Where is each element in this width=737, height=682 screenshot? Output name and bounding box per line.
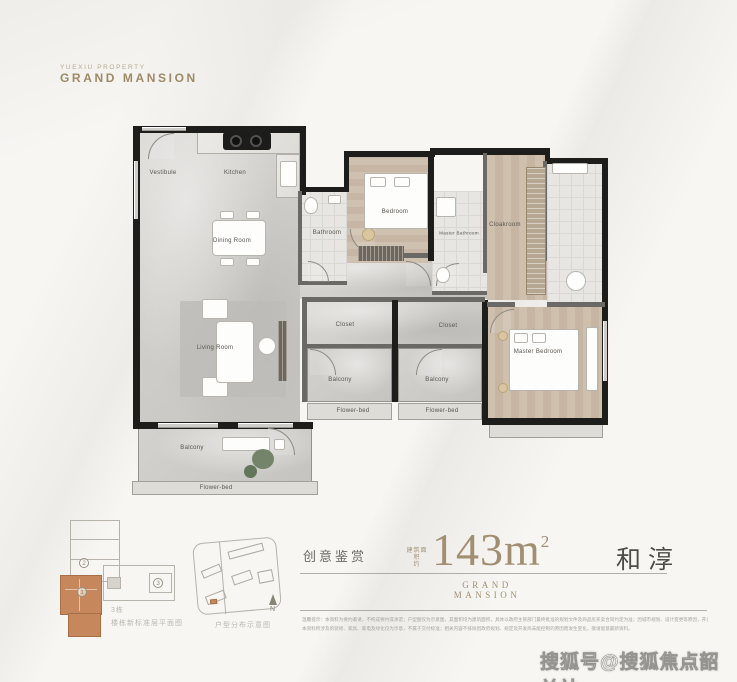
brand-logo: YUEXIU PROPERTY GRAND MANSION	[60, 64, 198, 85]
floorplan-poster: YUEXIU PROPERTY GRAND MANSION	[0, 0, 737, 682]
wall	[602, 158, 608, 425]
window-bench	[586, 327, 598, 391]
disclaimer-line-2: 本资料所涉及的装修、家具、家电及绿化仅为示意，不属于交付标准；相关内容不排除因政…	[302, 626, 708, 632]
plant-icon	[252, 449, 274, 469]
room-label-balcony-b: Balcony	[425, 377, 448, 383]
shower-icon	[436, 197, 456, 217]
room-label-cloakroom: Cloakroom	[489, 222, 521, 228]
wall	[432, 291, 487, 295]
siteplan-building	[227, 543, 264, 560]
pillow	[532, 333, 546, 343]
disclaimer-line-1: 温馨提示：本资料为要约邀请，不构成要约或承诺；户型图仅为示意图，其面积均为建筑面…	[302, 617, 708, 623]
divider-rule	[300, 573, 667, 574]
brand-tagline: YUEXIU PROPERTY	[60, 64, 198, 71]
wall	[300, 187, 347, 192]
pillow	[514, 333, 528, 343]
unit-3-badge: 3	[153, 578, 163, 588]
balcony-table	[274, 439, 285, 450]
label-flower-bed-a: Flower-bed	[336, 408, 369, 414]
siteplan-highlight-unit	[210, 599, 217, 605]
siteplan-divider	[219, 542, 226, 614]
wall	[300, 126, 306, 195]
room-label-balcony-a: Balcony	[328, 377, 351, 383]
sofa	[216, 321, 254, 383]
bathtub-icon	[566, 271, 586, 291]
brand-name: GRAND MANSION	[60, 71, 198, 85]
dining-chair	[246, 258, 260, 266]
wall	[487, 302, 515, 307]
plant-icon	[244, 465, 257, 478]
room-label-bedroom: Bedroom	[382, 209, 408, 215]
keyplan-highlight-unit	[68, 613, 101, 637]
product-name: 和淳	[616, 540, 680, 576]
area-prefix-top: 建筑面积	[404, 548, 430, 562]
siteplan-building	[231, 570, 253, 586]
armchair	[202, 299, 228, 319]
area-number: 143m	[432, 524, 541, 575]
window	[238, 423, 293, 428]
dining-chair	[220, 211, 234, 219]
dining-chair	[246, 211, 260, 219]
window	[142, 127, 186, 131]
keyplan-building-label: 3栋	[111, 605, 124, 615]
pillow	[370, 177, 386, 187]
wall	[302, 300, 307, 402]
room-label-main-balcony: Balcony	[180, 445, 203, 451]
room-label-kitchen: Kitchen	[224, 170, 246, 176]
wall	[344, 151, 349, 192]
hall-cabinet	[358, 246, 404, 261]
burner-icon	[230, 135, 242, 147]
room-label-vestibule: Vestibule	[149, 170, 176, 176]
basin-icon	[328, 195, 341, 204]
dining-chair	[220, 258, 234, 266]
site-plan: N 户型分布示意图	[193, 538, 293, 633]
keyplan-line	[70, 539, 120, 540]
bay-shelf	[552, 163, 588, 174]
nightstand	[498, 383, 508, 393]
master-bedroom-planter	[489, 424, 603, 438]
label-flower-bed-b: Flower-bed	[425, 408, 458, 414]
wall	[392, 300, 398, 402]
unit-2-badge: 2	[79, 558, 89, 568]
floor-plan: Vestibule Kitchen Dining Room Living Roo…	[118, 121, 610, 500]
room-label-dining: Dining Room	[213, 238, 251, 244]
wall	[483, 153, 487, 273]
wardrobe	[526, 167, 546, 295]
category-label: 创意鉴赏	[303, 546, 367, 565]
toilet-icon	[436, 267, 450, 283]
north-arrow-icon	[269, 594, 277, 605]
pillow	[394, 177, 410, 187]
keyplan-stair-core	[107, 577, 121, 589]
siteplan-building	[257, 569, 274, 584]
room-label-closet-b: Closet	[439, 323, 458, 329]
siteplan-building	[201, 564, 223, 579]
room-label-master-bathroom: Master Bathroom	[439, 231, 479, 236]
area-prefix-bottom: 约	[404, 562, 430, 569]
kitchen-sink	[280, 161, 297, 187]
window	[603, 321, 607, 381]
wall	[547, 302, 605, 307]
area-prefix: 建筑面积 约	[404, 548, 430, 569]
series-label: GRAND MANSION	[428, 580, 546, 600]
window	[134, 161, 138, 219]
wall	[430, 148, 549, 155]
toilet-icon	[304, 197, 318, 214]
area-value: 143m2	[432, 527, 550, 573]
area-superscript: 2	[541, 532, 551, 551]
tv-console	[278, 321, 287, 381]
watermark: 搜狐号@搜狐焦点韶关站	[540, 647, 737, 682]
keyplan-caption: 楼栋新标准层平面图	[111, 618, 183, 628]
burner-icon	[250, 135, 262, 147]
north-label: N	[270, 606, 275, 613]
window	[158, 423, 218, 428]
wall	[482, 300, 488, 425]
siteplan-caption: 户型分布示意图	[215, 620, 271, 630]
wall	[298, 191, 302, 285]
room-label-living: Living Room	[197, 345, 234, 351]
coffee-table	[258, 337, 276, 355]
wall	[428, 151, 434, 261]
divider-rule	[300, 610, 707, 611]
room-label-bathroom: Bathroom	[313, 230, 341, 236]
label-flower-bed-main: Flower-bed	[199, 485, 232, 491]
wall	[487, 418, 608, 425]
nightstand	[498, 331, 508, 341]
round-stool	[362, 228, 375, 241]
building-key-plan: 2 1 3 3栋 楼栋新标准层平面图	[55, 515, 195, 645]
room-label-closet-a: Closet	[336, 322, 355, 328]
wall	[344, 151, 435, 157]
keyplan-line	[70, 559, 120, 560]
unit-1-badge: 1	[77, 587, 87, 597]
room-label-master-bedroom: Master Bedroom	[514, 349, 563, 355]
